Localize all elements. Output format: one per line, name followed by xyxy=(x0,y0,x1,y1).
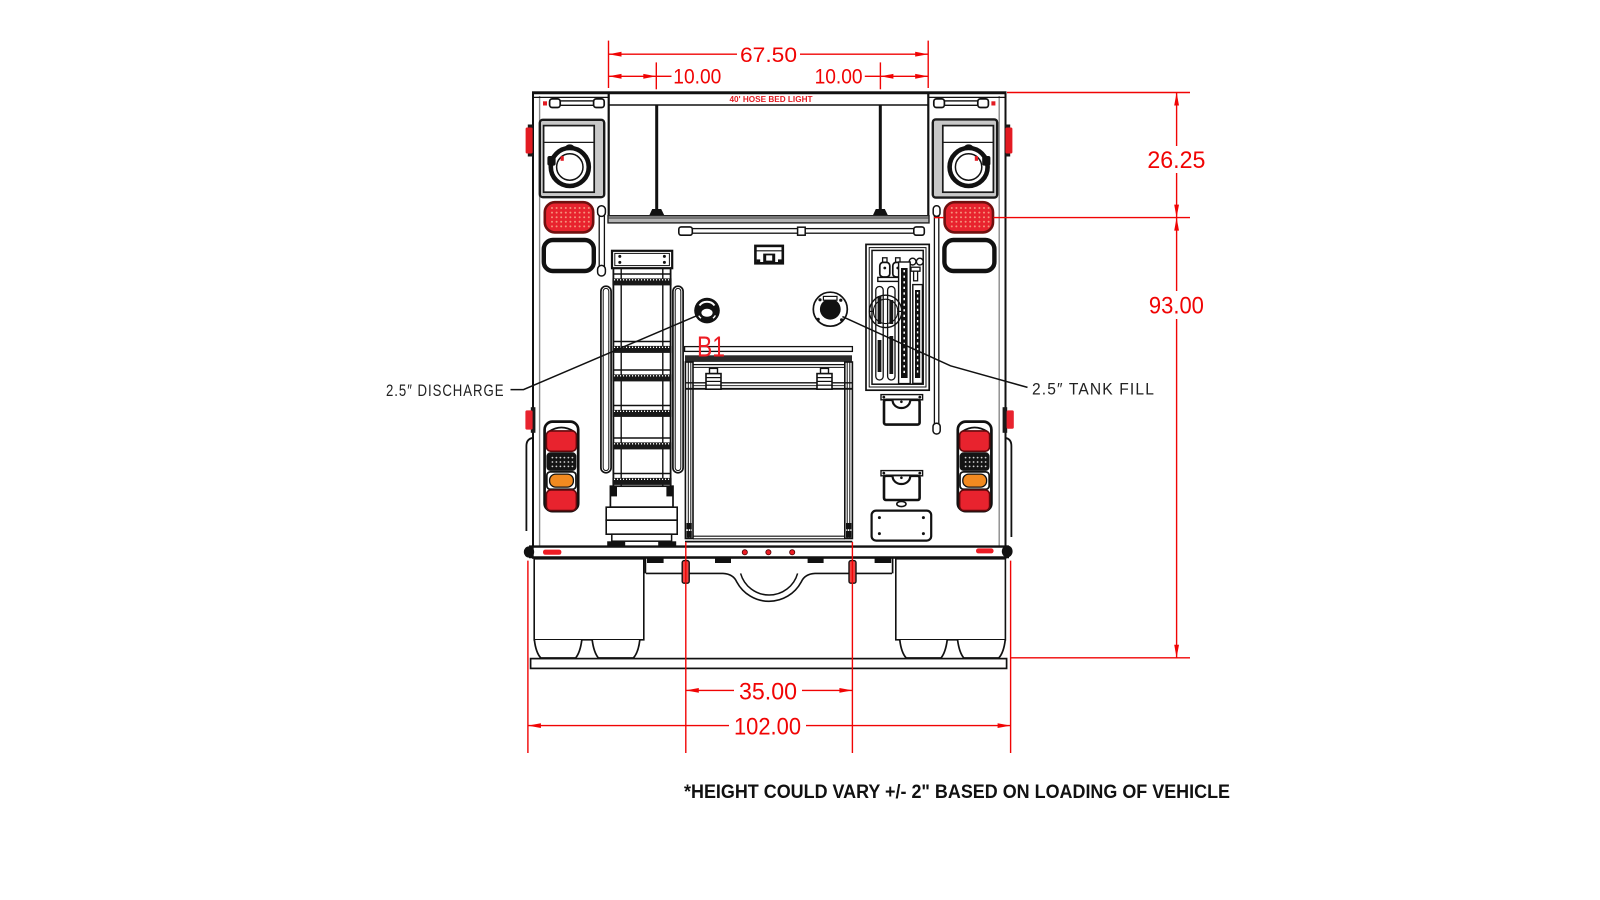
svg-text:10.00: 10.00 xyxy=(815,66,863,89)
svg-text:40' HOSE BED LIGHT: 40' HOSE BED LIGHT xyxy=(730,95,813,104)
svg-text:2.5″ DISCHARGE: 2.5″ DISCHARGE xyxy=(386,382,505,400)
svg-text:35.00: 35.00 xyxy=(739,678,797,705)
svg-text:B1: B1 xyxy=(697,332,725,364)
svg-text:10.00: 10.00 xyxy=(673,66,721,89)
svg-text:102.00: 102.00 xyxy=(734,714,801,741)
svg-text:2.5″ TANK FILL: 2.5″ TANK FILL xyxy=(1032,380,1155,398)
svg-text:26.25: 26.25 xyxy=(1147,147,1205,174)
svg-text:93.00: 93.00 xyxy=(1149,292,1204,319)
svg-text:67.50: 67.50 xyxy=(740,44,797,67)
svg-text:*HEIGHT COULD VARY +/- 2" BASE: *HEIGHT COULD VARY +/- 2" BASED ON LOADI… xyxy=(684,782,1230,803)
